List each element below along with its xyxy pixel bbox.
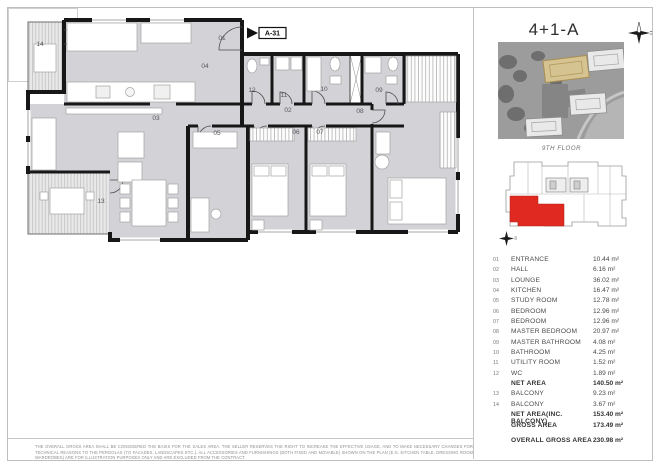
area-row-val: 3.67 m² [593,401,649,408]
area-row-nm: LOUNGE [511,277,593,284]
unit-marker-label: A-31 [265,31,280,38]
area-row-val: 12.96 m² [593,318,649,325]
area-row-no: 14 [493,402,511,408]
area-row-val: 4.08 m² [593,339,649,346]
area-row-no: 08 [493,329,511,335]
unit-type-title: 4+1-A [474,20,634,40]
area-row-nm: NET AREA [511,380,593,387]
room-number-label: 03 [152,115,160,122]
entrance-marker: A-31 [247,28,286,39]
info-panel: 4+1-A [473,8,653,459]
area-row-nm: WC [511,370,593,377]
area-row-nm: BEDROOM [511,318,593,325]
room-number-label: 02 [284,107,292,114]
area-row-nm: BALCONY [511,390,593,397]
area-row: 05STUDY ROOM12.78 m² [474,297,653,307]
area-row: 03LOUNGE36.02 m² [474,277,653,287]
area-row-no: 10 [493,350,511,356]
area-row-no: 13 [493,391,511,397]
area-row-val: 230.98 m² [593,437,649,444]
area-row-val: 153.40 m² [593,411,649,418]
area-row-val: 20.97 m² [593,328,649,335]
room-number-label: 10 [320,86,328,93]
area-row: 12WC1.89 m² [474,370,653,380]
area-row: GROSS AREA173.49 m² [474,422,653,432]
area-row: 10BATHROOM4.25 m² [474,349,653,359]
area-row-no: 12 [493,371,511,377]
area-row-val: 1.52 m² [593,359,649,366]
room-number-label: 14 [36,41,44,48]
area-row-nm: BATHROOM [511,349,593,356]
area-row-no: 01 [493,257,511,263]
compass-icon [626,20,652,46]
area-row-no: 11 [493,360,511,366]
area-row-nm: BEDROOM [511,308,593,315]
floor-label: 9TH FLOOR [474,146,649,152]
area-row: 08MASTER BEDROOM20.97 m² [474,328,653,338]
area-row-nm: ENTRANCE [511,256,593,263]
area-row-no: 05 [493,298,511,304]
area-row: 14BALCONY3.67 m² [474,401,653,411]
area-row: OVERALL GROSS AREA230.98 m² [474,437,653,447]
area-row-val: 12.78 m² [593,297,649,304]
area-row-no: 07 [493,319,511,325]
area-row-val: 12.96 m² [593,308,649,315]
area-row: 13BALCONY9.23 m² [474,390,653,400]
room-number-label: 07 [316,129,324,136]
area-row-val: 16.47 m² [593,287,649,294]
keyplan-compass-icon [499,231,517,246]
area-row-no: 02 [493,267,511,273]
area-row-nm: STUDY ROOM [511,297,593,304]
area-row: NET AREA140.50 m² [474,380,653,390]
disclaimer-strip: THE OVERALL GROSS AREA SHALL BE CONSIDER… [8,438,473,460]
area-row: 07BEDROOM12.96 m² [474,318,653,328]
area-row-nm: GROSS AREA [511,422,593,429]
area-row-val: 4.25 m² [593,349,649,356]
area-row-no: 09 [493,340,511,346]
area-row-nm: OVERALL GROSS AREA [511,437,593,444]
area-row-no: 03 [493,278,511,284]
area-row-val: 1.89 m² [593,370,649,377]
floor-plan-drawing: A-31 0102030405060708091011121314 [0,0,475,380]
area-row-val: 140.50 m² [593,380,649,387]
area-row-nm: MASTER BATHROOM [511,339,593,346]
room-number-label: 12 [248,87,256,94]
area-row-nm: HALL [511,266,593,273]
room-number-label: 04 [201,63,209,70]
room-number-label: 08 [356,108,364,115]
area-row-nm: BALCONY [511,401,593,408]
area-row-no: 06 [493,309,511,315]
area-table: 01ENTRANCE10.44 m²02HALL6.16 m²03LOUNGE3… [474,256,653,447]
area-row-no: 04 [493,288,511,294]
area-row: 11UTILITY ROOM1.52 m² [474,359,653,369]
area-row: 02HALL6.16 m² [474,266,653,276]
area-row-val: 173.49 m² [593,422,649,429]
area-row-val: 36.02 m² [593,277,649,284]
key-plan [492,156,647,252]
area-row-nm: KITCHEN [511,287,593,294]
room-number-label: 01 [218,35,226,42]
area-row-val: 10.44 m² [593,256,649,263]
area-row: 06BEDROOM12.96 m² [474,308,653,318]
area-row: 04KITCHEN16.47 m² [474,287,653,297]
area-row-val: 9.23 m² [593,390,649,397]
area-row-nm: MASTER BEDROOM [511,328,593,335]
floor-plan-sheet: A-31 0102030405060708091011121314 4+1-A [0,0,660,467]
room-number-label: 11 [281,92,288,99]
room-number-label: 06 [292,129,300,136]
room-number-label: 09 [375,87,383,94]
area-row: 01ENTRANCE10.44 m² [474,256,653,266]
room-number-label: 05 [213,130,221,137]
area-row-nm: UTILITY ROOM [511,359,593,366]
satellite-image [498,42,624,139]
room-number-label: 13 [97,198,105,205]
area-row: NET AREA(INC. BALCONY)153.40 m² [474,411,653,421]
area-row: 09MASTER BATHROOM4.08 m² [474,339,653,349]
area-row-val: 6.16 m² [593,266,649,273]
